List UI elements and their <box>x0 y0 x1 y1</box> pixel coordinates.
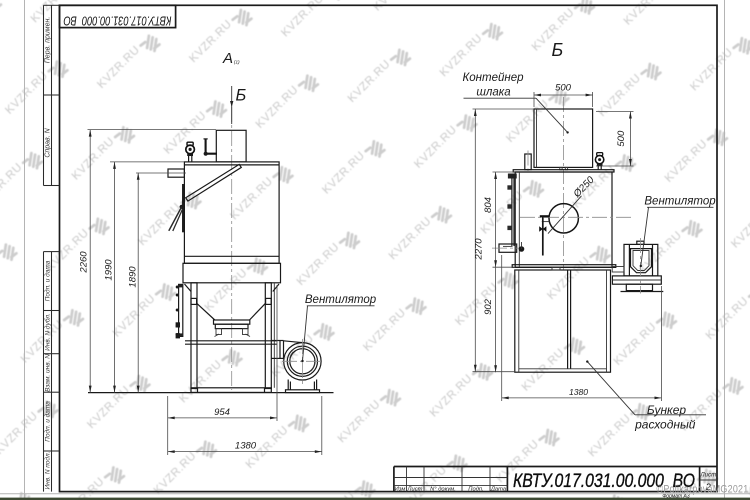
svg-text:Вентилятор: Вентилятор <box>644 196 716 208</box>
svg-text:Перв. примен.: Перв. примен. <box>45 17 52 64</box>
svg-text:804: 804 <box>483 197 494 213</box>
svg-text:1990: 1990 <box>104 259 115 281</box>
svg-text:Справ. N: Справ. N <box>45 127 52 157</box>
svg-text:А: А <box>222 50 233 67</box>
svg-text:шлака: шлака <box>476 87 510 99</box>
svg-text:Подп. и дата: Подп. и дата <box>44 260 52 301</box>
svg-text:Лист: Лист <box>699 472 716 479</box>
svg-text:Б: Б <box>552 40 564 60</box>
svg-text:Инв. N подл.: Инв. N подл. <box>44 451 52 489</box>
svg-text:500: 500 <box>555 83 572 94</box>
svg-text:Дата: Дата <box>490 486 507 492</box>
svg-text:КВТУ.017.031.00.000 ВО: КВТУ.017.031.00.000 ВО <box>63 13 171 27</box>
svg-text:Подп. и дата: Подп. и дата <box>44 401 52 442</box>
svg-text:Б: Б <box>236 87 247 105</box>
svg-text:1380: 1380 <box>569 387 588 397</box>
svg-text:Контейнер: Контейнер <box>463 72 525 84</box>
svg-text:Вентилятор: Вентилятор <box>305 294 377 306</box>
svg-text:Взам. инв. N: Взам. инв. N <box>45 354 52 392</box>
svg-text:954: 954 <box>214 407 230 418</box>
svg-text:(1): (1) <box>234 59 240 65</box>
svg-text:2260: 2260 <box>79 251 90 274</box>
svg-text:500: 500 <box>616 130 627 147</box>
svg-text:N° докум.: N° докум. <box>430 486 456 492</box>
svg-text:2270: 2270 <box>474 238 485 261</box>
svg-text:1890: 1890 <box>127 266 138 288</box>
svg-text:1380: 1380 <box>235 440 257 451</box>
svg-text:Изм: Изм <box>395 486 406 492</box>
svg-text:Подп.: Подп. <box>468 486 483 492</box>
svg-text:расходный: расходный <box>634 418 696 432</box>
svg-text:Лист: Лист <box>407 486 423 492</box>
svg-text:902: 902 <box>483 298 494 315</box>
svg-text:Инв. N дубл.: Инв. N дубл. <box>44 313 52 351</box>
